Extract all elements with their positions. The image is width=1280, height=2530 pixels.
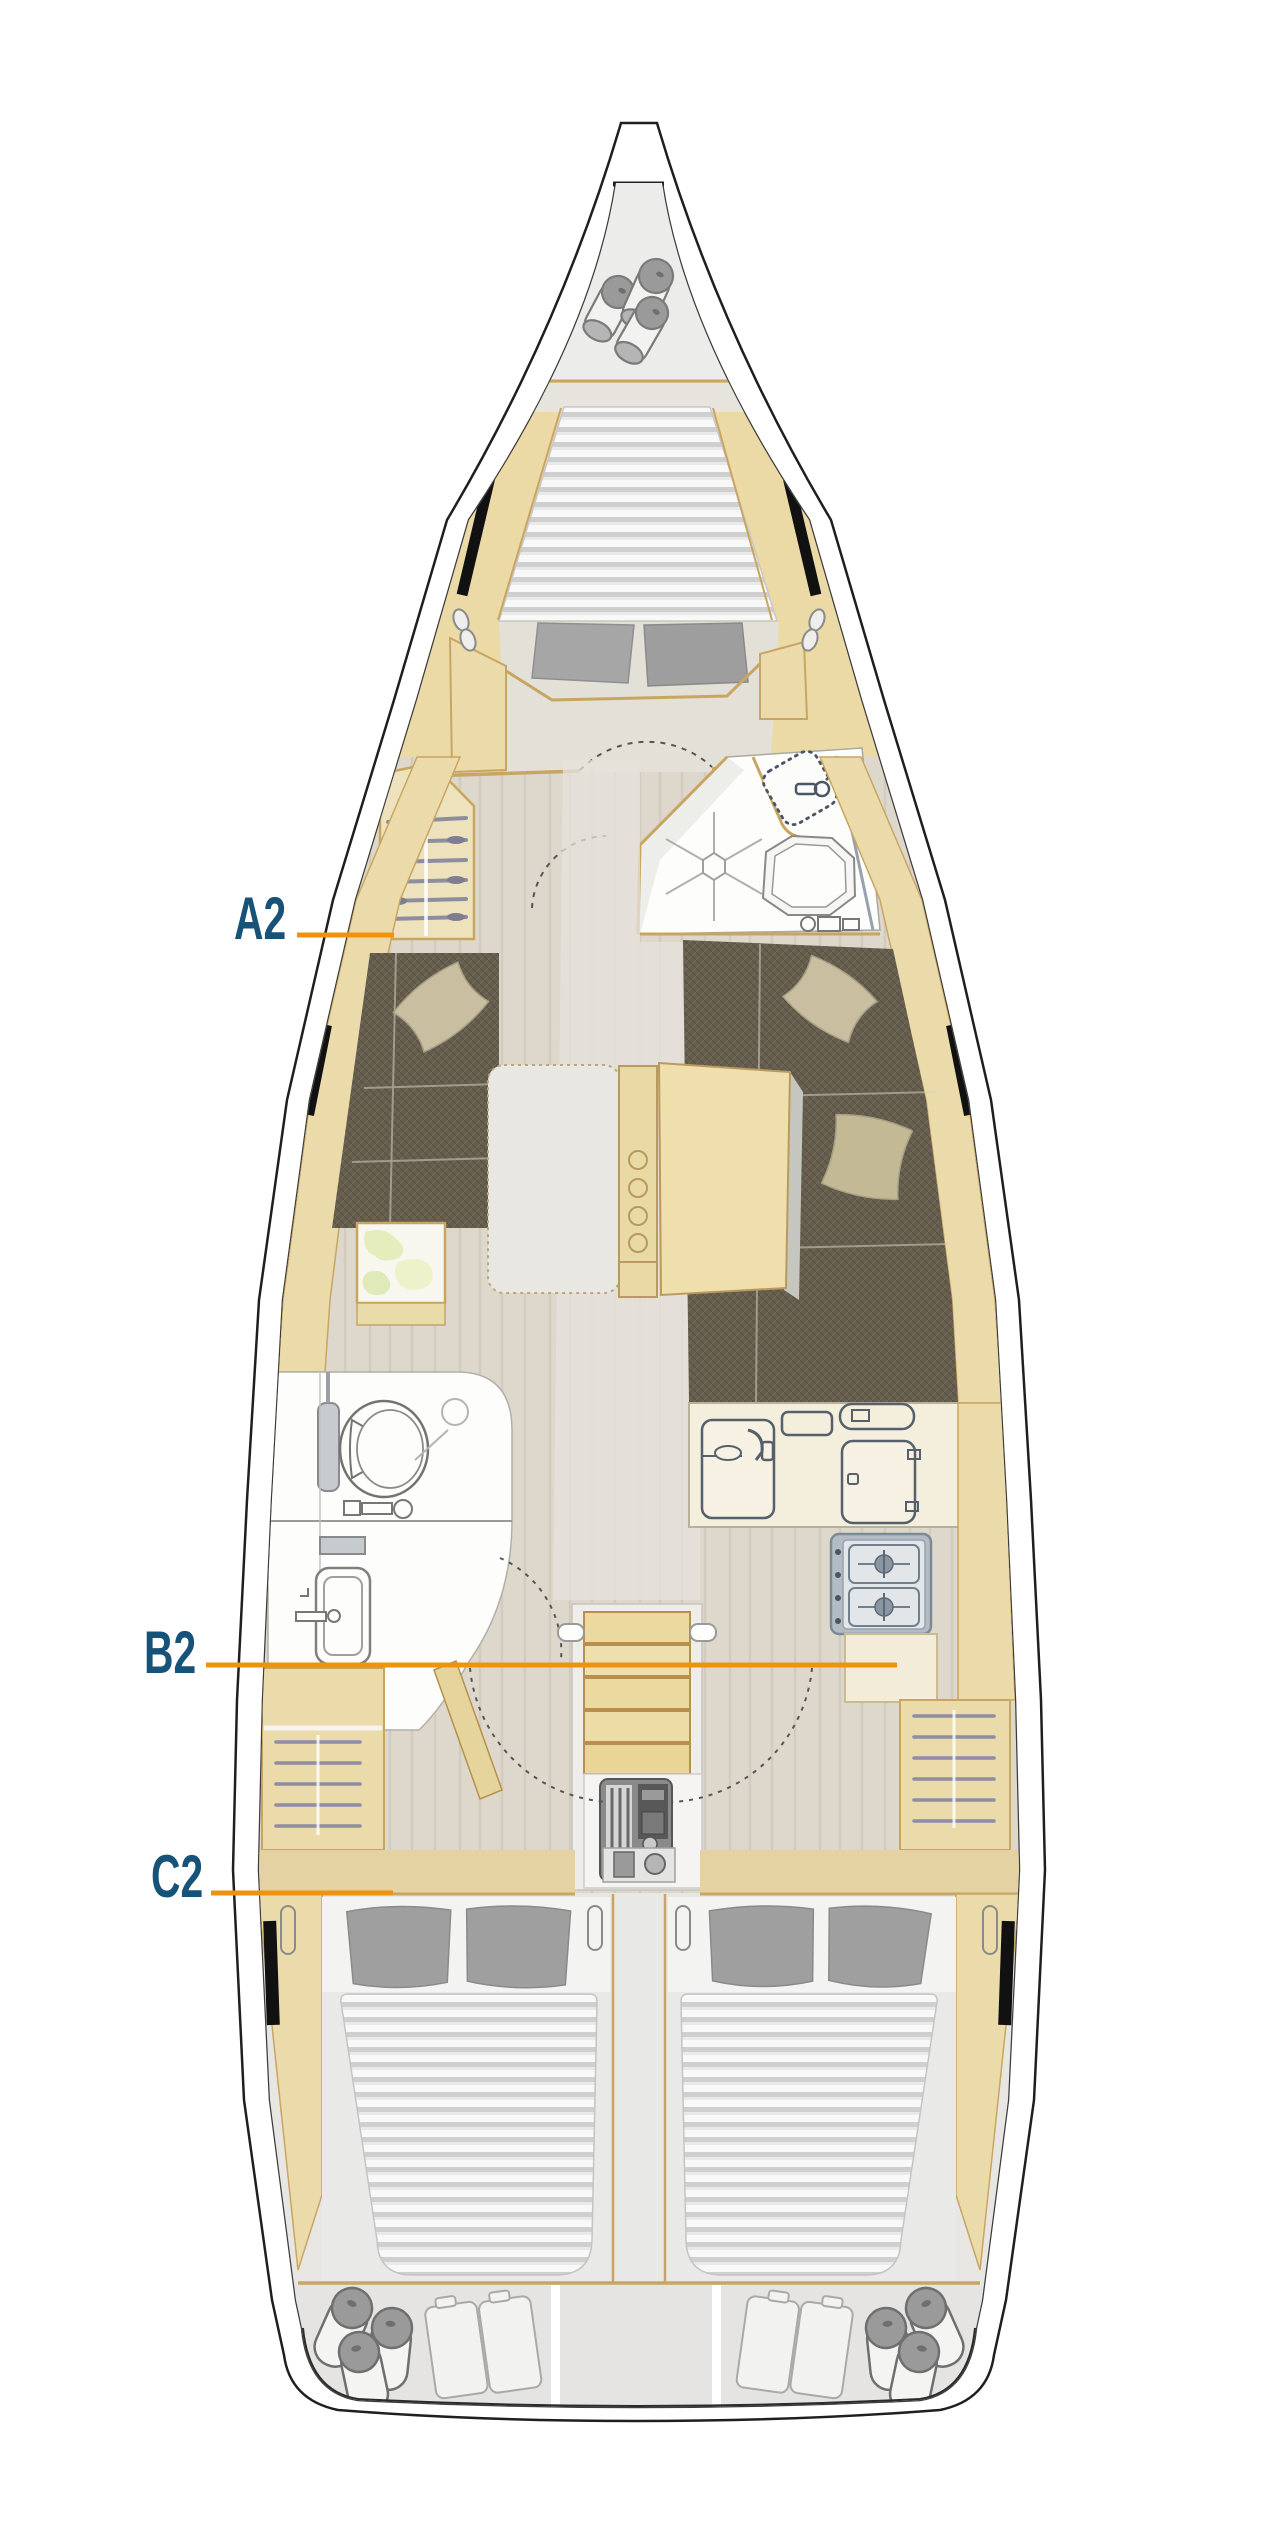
svg-text:C2: C2 [151, 1843, 203, 1910]
svg-text:A2: A2 [234, 885, 286, 952]
svg-text:B2: B2 [144, 1619, 196, 1686]
